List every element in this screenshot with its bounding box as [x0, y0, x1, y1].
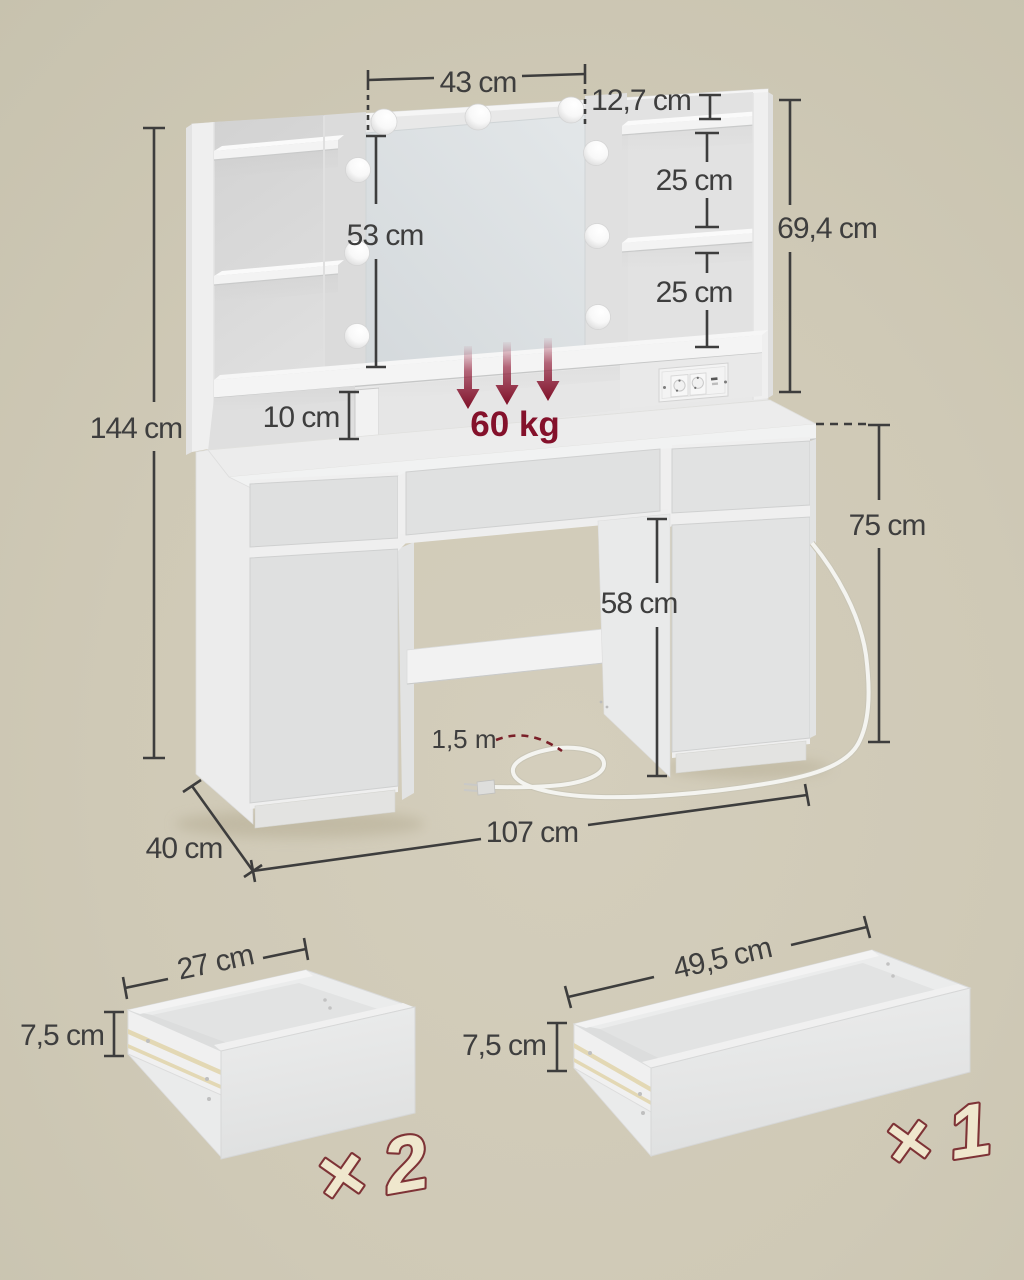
svg-text:× 1: × 1	[880, 1087, 997, 1185]
svg-text:25 cm: 25 cm	[656, 164, 733, 197]
svg-text:12,7 cm: 12,7 cm	[591, 84, 691, 117]
svg-text:60 kg: 60 kg	[470, 405, 560, 444]
svg-text:7,5 cm: 7,5 cm	[462, 1029, 546, 1062]
svg-text:43 cm: 43 cm	[440, 66, 517, 99]
svg-text:53 cm: 53 cm	[347, 219, 424, 252]
svg-text:107 cm: 107 cm	[486, 816, 578, 849]
svg-text:144 cm: 144 cm	[90, 412, 182, 445]
svg-text:58 cm: 58 cm	[601, 587, 678, 620]
svg-text:69,4 cm: 69,4 cm	[777, 212, 877, 245]
svg-text:7,5 cm: 7,5 cm	[20, 1019, 104, 1052]
svg-text:40 cm: 40 cm	[146, 832, 223, 865]
svg-text:75 cm: 75 cm	[849, 509, 926, 542]
svg-text:25 cm: 25 cm	[656, 276, 733, 309]
svg-text:1,5 m: 1,5 m	[431, 724, 496, 754]
svg-text:10 cm: 10 cm	[263, 401, 340, 434]
